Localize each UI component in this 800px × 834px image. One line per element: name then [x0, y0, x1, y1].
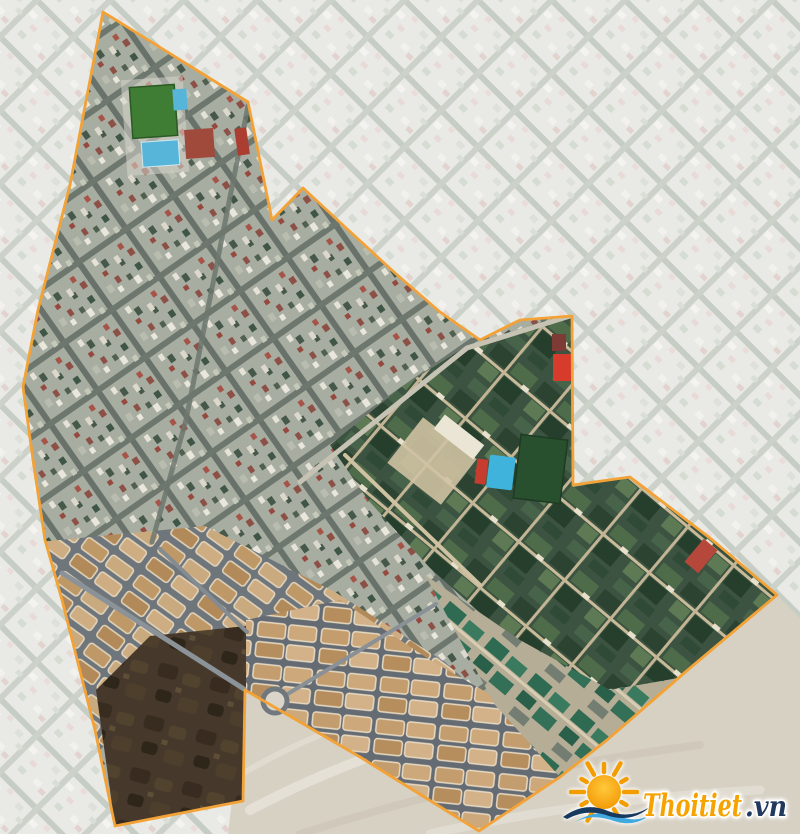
pool-small: [172, 89, 187, 111]
screenshot-root: Thoitiet .vn: [0, 0, 800, 834]
brand-name: Thoitiet: [643, 788, 742, 824]
campus-pool: [486, 455, 516, 491]
red-roof-complex: [184, 128, 215, 159]
dark-red-building: [552, 334, 566, 351]
brand-tld: .vn: [745, 790, 787, 823]
campus-sports-field: [513, 434, 567, 503]
soccer-field: [129, 84, 177, 138]
satellite-map-image: Thoitiet .vn: [0, 0, 800, 834]
swimming-pool-north: [141, 140, 180, 168]
red-building-east: [553, 354, 572, 381]
